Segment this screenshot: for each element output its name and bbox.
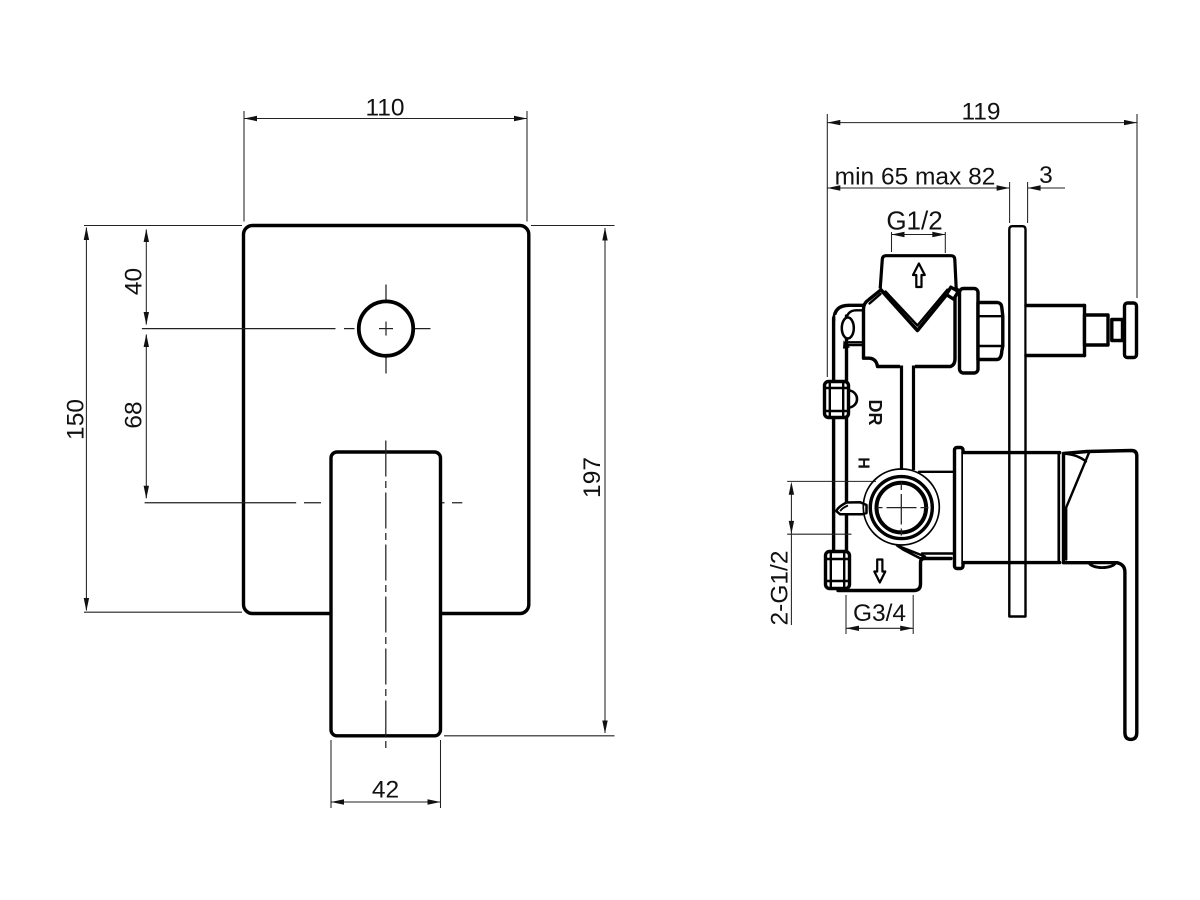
svg-text:H: H: [855, 457, 872, 469]
svg-text:G1/2: G1/2: [886, 206, 942, 236]
svg-text:G3/4: G3/4: [853, 600, 906, 627]
svg-text:40: 40: [121, 268, 148, 295]
svg-text:197: 197: [579, 457, 606, 498]
svg-text:DR: DR: [865, 400, 885, 426]
svg-text:119: 119: [961, 99, 1000, 126]
svg-text:3: 3: [1039, 162, 1053, 189]
svg-text:110: 110: [365, 95, 404, 122]
svg-text:68: 68: [121, 401, 148, 428]
svg-text:min 65 max 82: min 65 max 82: [835, 164, 996, 191]
svg-text:2-G1/2: 2-G1/2: [767, 551, 794, 626]
svg-text:42: 42: [372, 777, 399, 804]
svg-text:150: 150: [63, 399, 90, 440]
